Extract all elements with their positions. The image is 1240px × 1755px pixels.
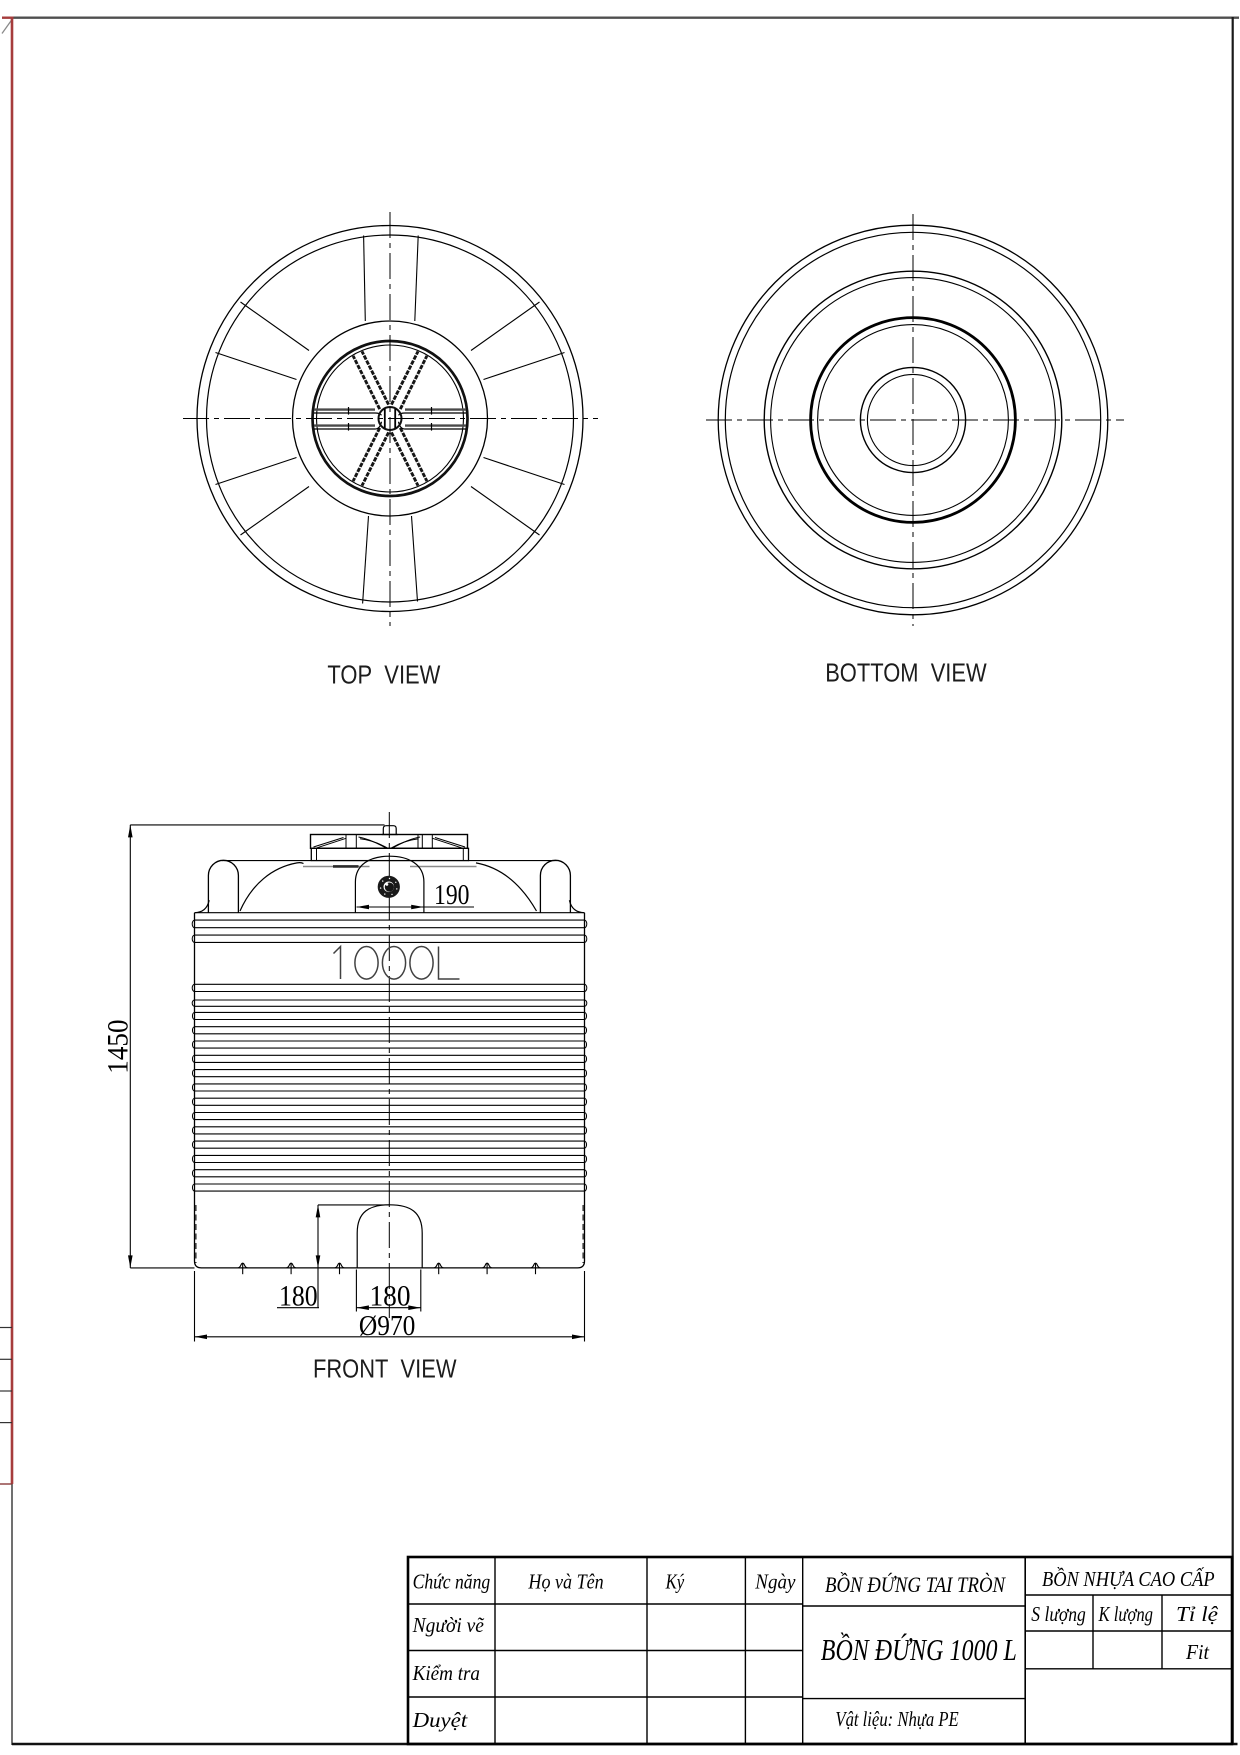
svg-text:190: 190	[434, 880, 470, 911]
svg-text:Vật liệu: Nhựa PE: Vật liệu: Nhựa PE	[835, 1707, 958, 1731]
svg-text:Ø970: Ø970	[359, 1310, 416, 1342]
svg-text:180: 180	[370, 1281, 411, 1313]
svg-text:BỒN ĐỨNG TAI TRÒN: BỒN ĐỨNG TAI TRÒN	[825, 1572, 1006, 1597]
svg-text:180: 180	[279, 1281, 318, 1313]
svg-text:Ngày: Ngày	[754, 1570, 796, 1594]
svg-text:TOP VIEW: TOP VIEW	[327, 660, 440, 690]
svg-text:BỒN ĐỨNG 1000 L: BỒN ĐỨNG 1000 L	[821, 1631, 1017, 1667]
svg-text:FRONT VIEW: FRONT VIEW	[313, 1354, 457, 1384]
svg-text:Tỉ lệ: Tỉ lệ	[1176, 1602, 1219, 1626]
svg-text:BOTTOM VIEW: BOTTOM VIEW	[825, 658, 987, 688]
svg-text:BỒN NHỰA CAO CẤP: BỒN NHỰA CAO CẤP	[1042, 1567, 1215, 1591]
svg-text:Chức năng: Chức năng	[413, 1570, 491, 1594]
svg-text:Ký: Ký	[665, 1570, 685, 1594]
svg-text:Duyệt: Duyệt	[412, 1708, 469, 1732]
svg-text:1450: 1450	[103, 1020, 135, 1074]
svg-text:K lượng: K lượng	[1098, 1602, 1153, 1626]
svg-text:Họ và Tên: Họ và Tên	[528, 1570, 604, 1594]
svg-text:S lượng: S lượng	[1031, 1602, 1086, 1626]
svg-text:Kiểm tra: Kiểm tra	[412, 1661, 480, 1685]
svg-text:Fit: Fit	[1185, 1640, 1210, 1664]
svg-text:Người vẽ: Người vẽ	[412, 1613, 485, 1637]
